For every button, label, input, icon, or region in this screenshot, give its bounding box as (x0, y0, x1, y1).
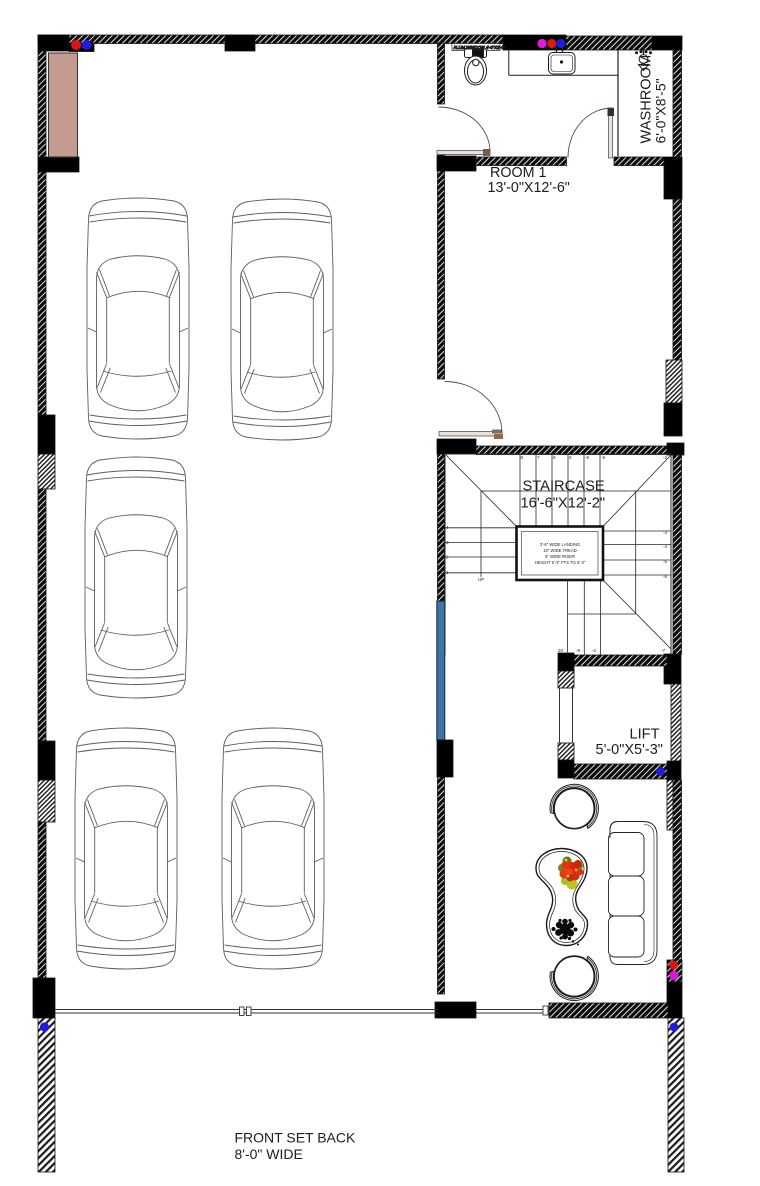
svg-text:8'-0" WIDE: 8'-0" WIDE (235, 1146, 303, 1162)
svg-text:-7: -7 (661, 648, 665, 653)
svg-text:-4: -4 (663, 544, 667, 549)
svg-text:20: 20 (558, 648, 564, 653)
svg-text:-2: -2 (663, 455, 667, 460)
svg-text:ROOM 1: ROOM 1 (490, 165, 546, 181)
svg-text:5'-0"X5'-3": 5'-0"X5'-3" (596, 742, 663, 758)
svg-text:13'-0"X12'-6": 13'-0"X12'-6" (488, 180, 570, 196)
svg-text:-8: -8 (585, 455, 589, 460)
svg-text:-2: -2 (592, 648, 596, 653)
svg-text:-9: -9 (601, 455, 605, 460)
svg-text:6'-0"X8'-5": 6'-0"X8'-5" (653, 78, 669, 143)
svg-text:-6: -6 (663, 574, 667, 579)
svg-text:HEIGHT 5'-3" FTS TO 5'-3": HEIGHT 5'-3" FTS TO 5'-3" (535, 560, 586, 565)
svg-text:-9: -9 (576, 648, 580, 653)
svg-text:3'-6" WIDE LANDING: 3'-6" WIDE LANDING (540, 542, 580, 547)
svg-text:STAIRCASE: STAIRCASE (523, 479, 605, 495)
svg-text:6" WIDE RISER: 6" WIDE RISER (545, 554, 575, 559)
svg-text:LIFT: LIFT (630, 727, 660, 743)
svg-text:10" WIDE TREAD: 10" WIDE TREAD (543, 548, 577, 553)
svg-text:FRONT SET BACK: FRONT SET BACK (235, 1130, 357, 1146)
svg-text:16'-6"X12'-2": 16'-6"X12'-2" (521, 496, 606, 512)
svg-text:-3: -3 (663, 530, 667, 535)
svg-text:-5: -5 (663, 559, 667, 564)
svg-text:UP: UP (478, 577, 484, 582)
